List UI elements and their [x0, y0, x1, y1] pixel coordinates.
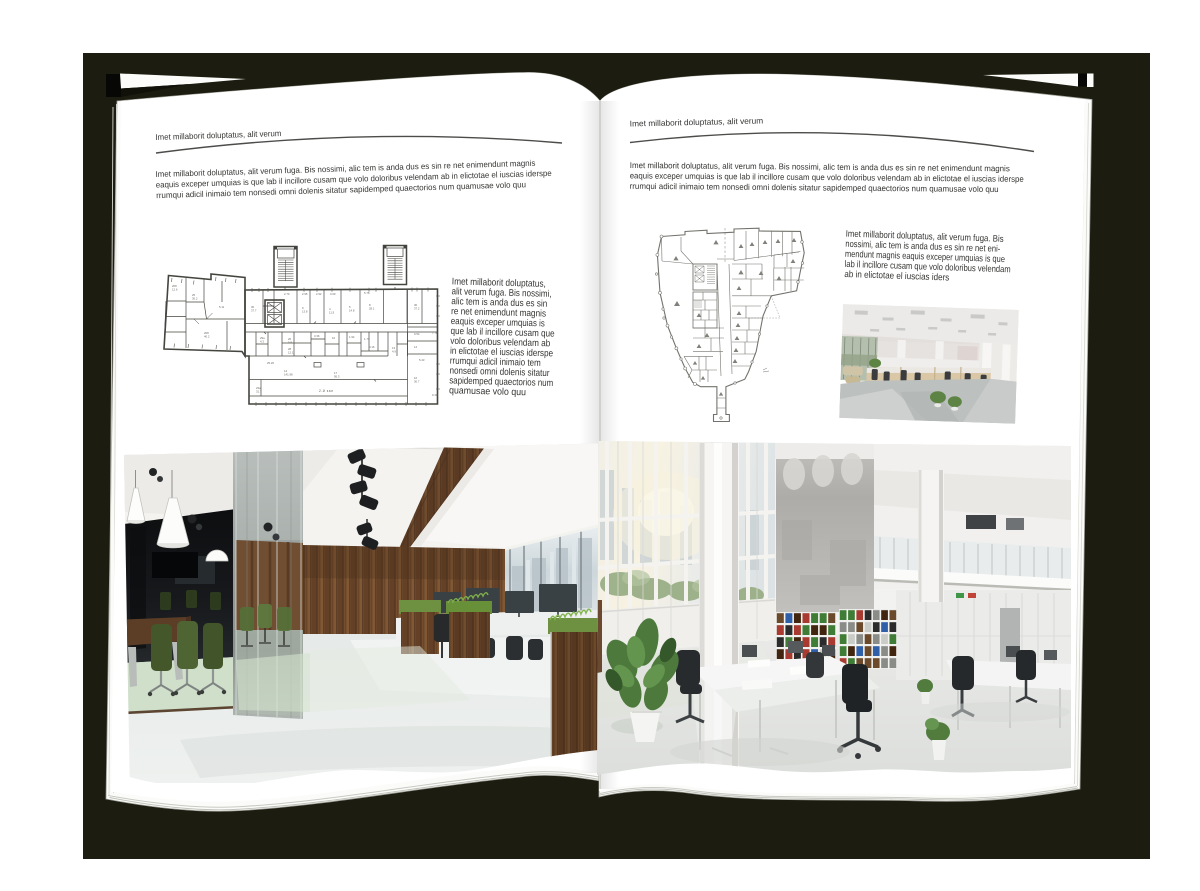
- svg-text:9.8: 9.8: [288, 341, 292, 345]
- svg-text:40.2: 40.2: [204, 335, 210, 339]
- svg-text:95.3: 95.3: [334, 375, 340, 379]
- svg-text:28.1: 28.1: [369, 307, 375, 311]
- svg-text:1.73: 1.73: [364, 337, 370, 341]
- svg-text:30.7: 30.7: [414, 380, 420, 384]
- svg-text:2.95: 2.95: [302, 292, 308, 296]
- svg-text:14.8: 14.8: [349, 309, 355, 313]
- svg-text:13.8: 13.8: [302, 310, 308, 314]
- svg-text:10: 10: [332, 336, 336, 340]
- svg-text:37.2: 37.2: [414, 307, 420, 311]
- svg-text:4.3: 4.3: [260, 340, 264, 344]
- svg-text:5.43: 5.43: [419, 358, 425, 362]
- svg-text:5.78: 5.78: [364, 291, 370, 295]
- svg-text:30.2: 30.2: [192, 297, 198, 301]
- svg-text:2.70: 2.70: [284, 292, 290, 296]
- svg-text:12.6: 12.6: [172, 288, 178, 292]
- svg-text:11.5: 11.5: [329, 311, 335, 315]
- svg-text:2.92: 2.92: [316, 292, 322, 296]
- svg-text:0.54: 0.54: [414, 332, 420, 336]
- svg-text:3.36: 3.36: [314, 334, 320, 338]
- svg-text:25.20: 25.20: [267, 361, 274, 365]
- svg-text:7.76: 7.76: [432, 331, 438, 335]
- svg-text:31.7: 31.7: [256, 390, 262, 394]
- svg-text:12.1: 12.1: [288, 351, 294, 355]
- svg-text:quamusae volo quu: quamusae volo quu: [449, 385, 526, 398]
- svg-text:5.11: 5.11: [219, 305, 225, 309]
- svg-text:4.16: 4.16: [369, 345, 375, 349]
- svg-text:14: 14: [414, 345, 418, 349]
- svg-text:141.98: 141.98: [284, 373, 293, 377]
- svg-text:4.9: 4.9: [392, 350, 396, 354]
- svg-text:0.30: 0.30: [432, 393, 438, 397]
- svg-text:3.09: 3.09: [330, 292, 336, 296]
- svg-text:37.7: 37.7: [251, 309, 257, 313]
- svg-text:1.94: 1.94: [349, 335, 355, 339]
- svg-text:2-й зал: 2-й зал: [319, 389, 333, 393]
